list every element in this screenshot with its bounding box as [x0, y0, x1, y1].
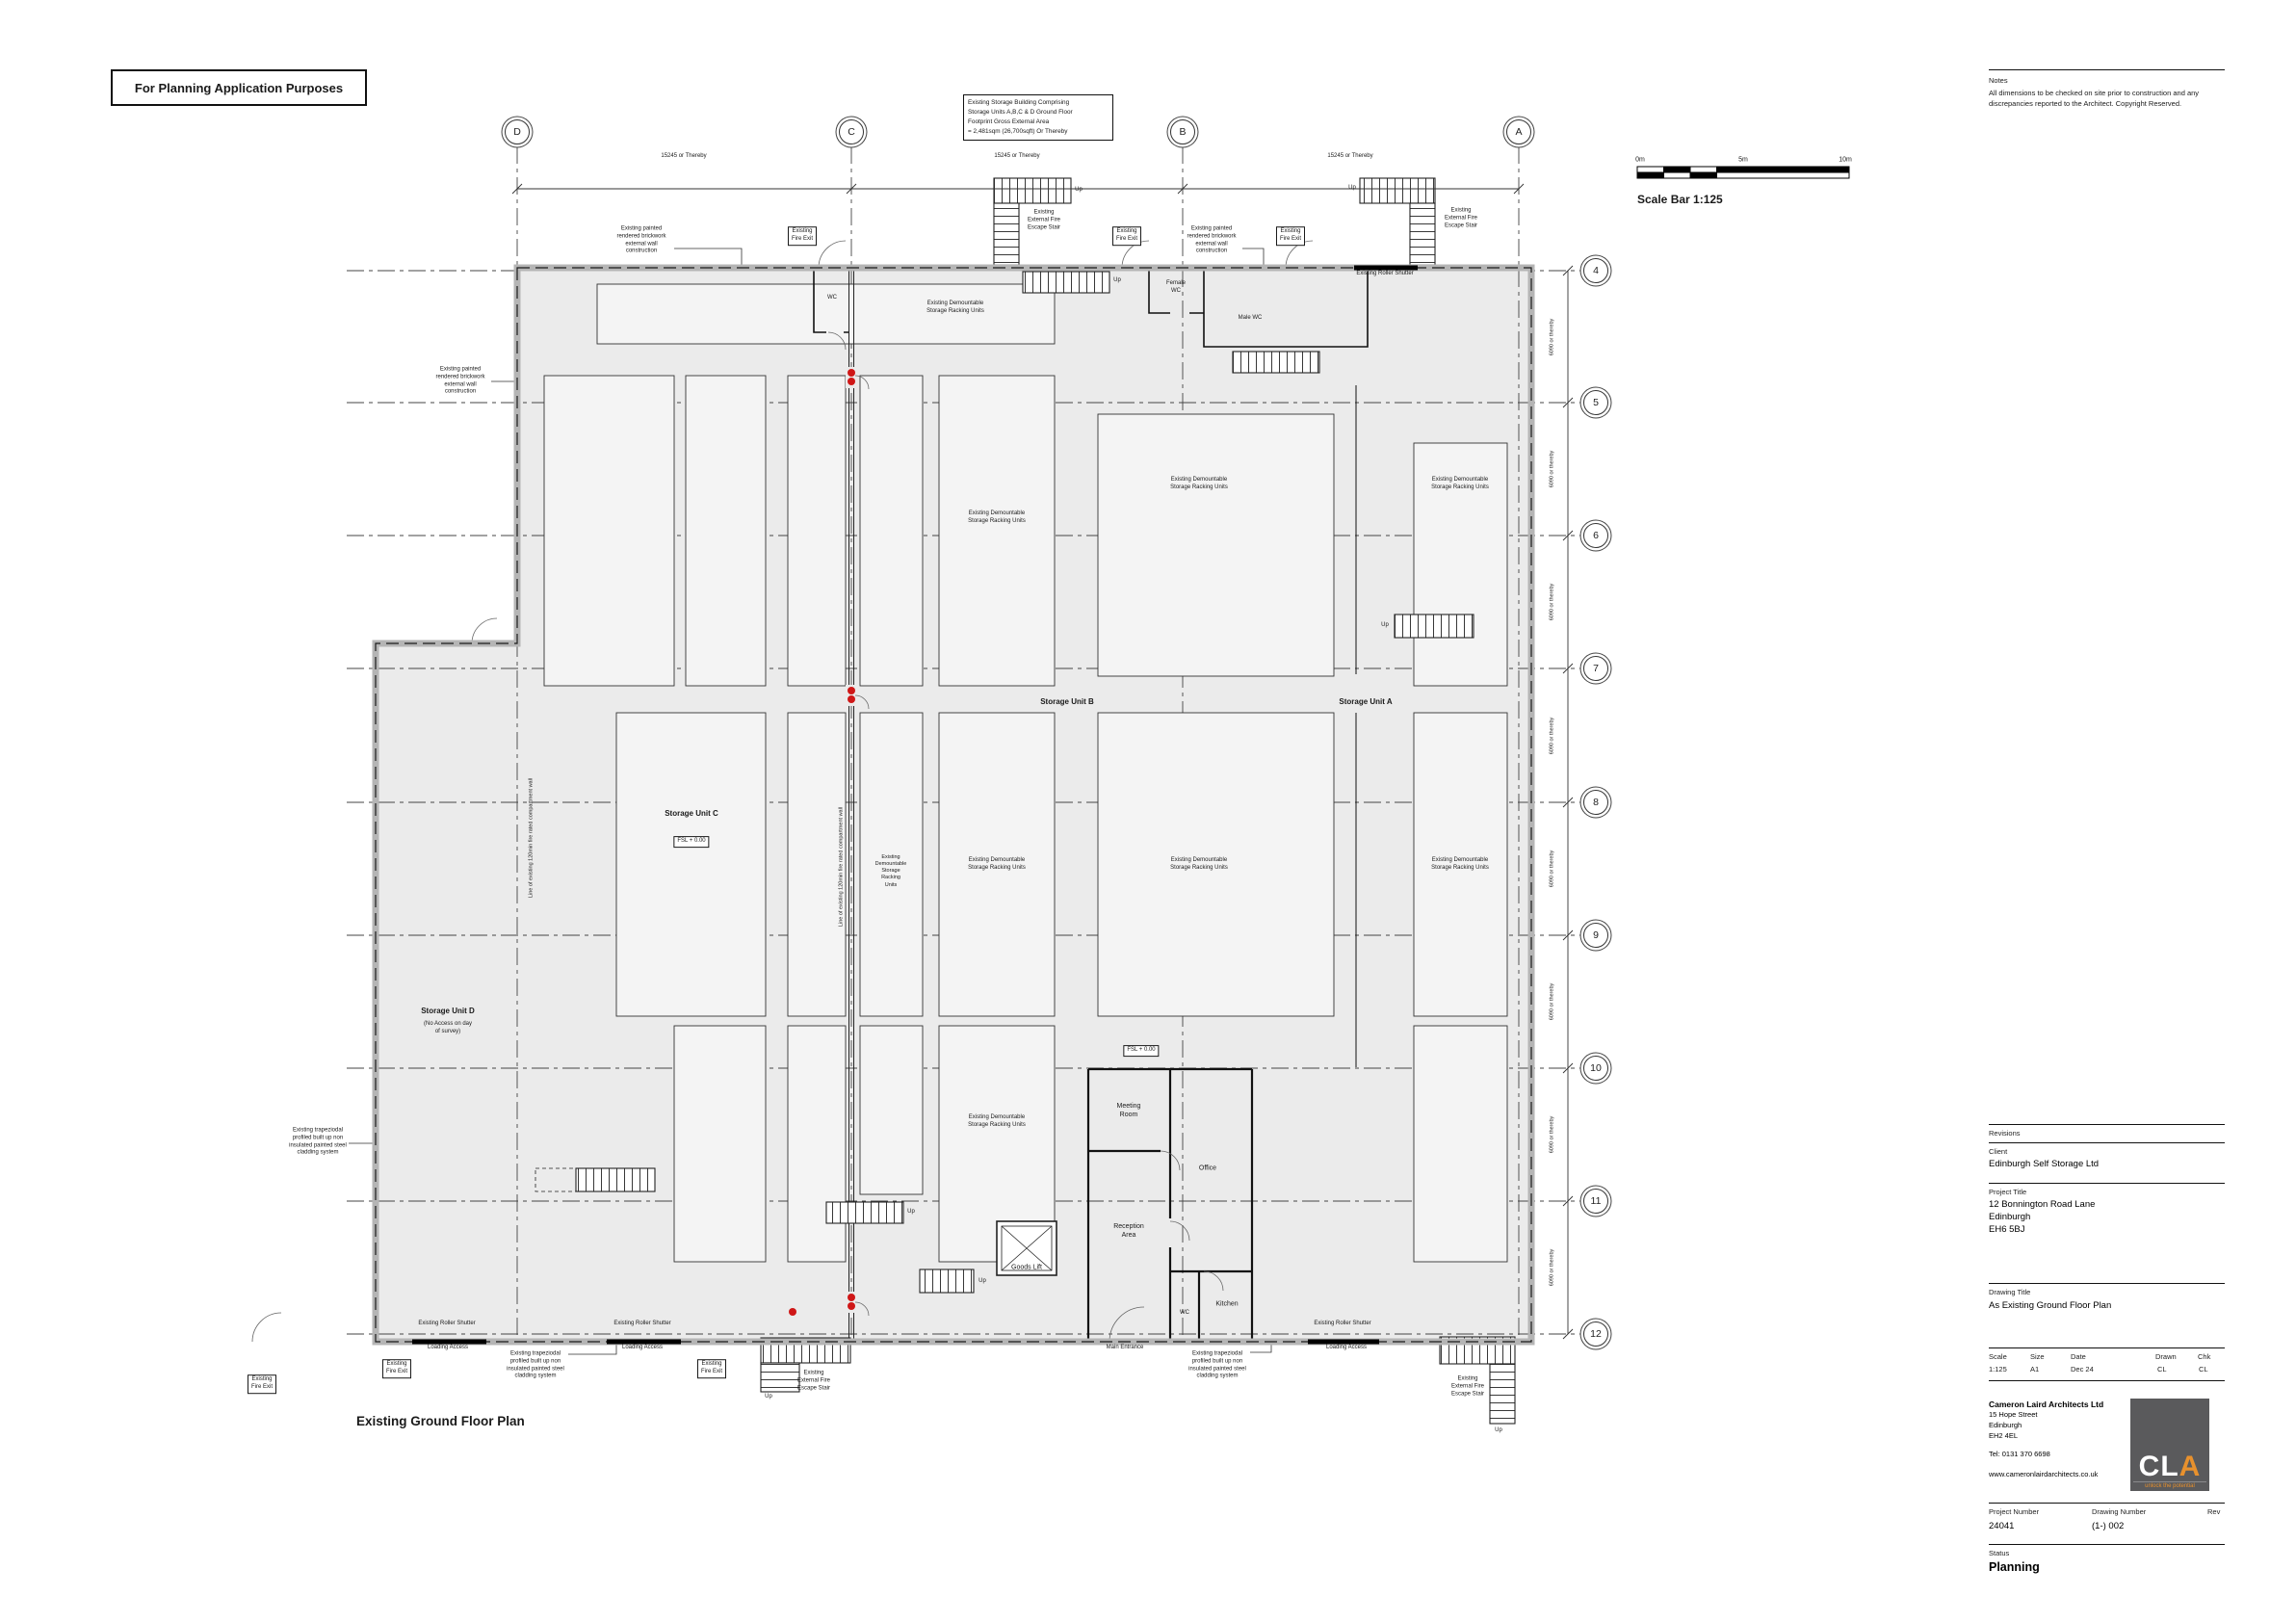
racking-label: Existing DemountableStorage Racking Unit…	[968, 510, 1026, 526]
storage-unit-b-label: Storage Unit B	[1040, 697, 1094, 707]
roller-shutter-label: Existing Roller Shutter	[1314, 1321, 1370, 1328]
racking-label: Existing DemountableStorage Racking Unit…	[1431, 857, 1489, 873]
logo-tagline: unlock the potential	[2133, 1481, 2205, 1489]
rev-label: Rev	[2207, 1507, 2220, 1516]
racking-label: Existing DemountableStorage Racking Unit…	[1431, 477, 1489, 492]
escape-stair-label: ExistingExternal FireEscape Stair	[1451, 1375, 1484, 1398]
dim-7-8: 6090 or thereby	[1549, 718, 1555, 755]
scale-bar-5m: 5m	[1738, 155, 1748, 164]
up-label: Up	[1495, 1427, 1502, 1435]
up-label: Up	[907, 1209, 915, 1216]
storage-unit-d-note: (No Access on dayof survey)	[424, 1021, 472, 1036]
drawing-number-label: Drawing Number	[2092, 1507, 2146, 1516]
racking-label: Existing DemountableStorage Racking Unit…	[1170, 857, 1228, 873]
racking-label: Existing DemountableStorage Racking Unit…	[926, 301, 984, 316]
project-address-line: Edinburgh	[1989, 1212, 2030, 1222]
up-label: Up	[1113, 277, 1121, 285]
brickwork-note: Existing paintedrendered brickwork exter…	[435, 366, 484, 396]
size-label: Size	[2030, 1352, 2045, 1361]
fire-exit-label: ExistingFire Exit	[1112, 226, 1141, 246]
titleblock-divider	[1989, 1503, 2225, 1504]
grid-bubble-6: 6	[1583, 523, 1608, 548]
office-label: Office	[1199, 1164, 1216, 1172]
grid-bubble-7: 7	[1583, 656, 1608, 681]
scale-bar-caption: Scale Bar 1:125	[1637, 193, 1723, 206]
scale-label: Scale	[1989, 1352, 2007, 1361]
drawing-number: (1-) 002	[2092, 1521, 2124, 1531]
grid-bubble-B: B	[1170, 119, 1195, 144]
titleblock-divider	[1989, 1347, 2225, 1348]
compartment-wall-note: Line of existing 120min fire rated compa…	[838, 807, 845, 927]
titleblock-divider	[1989, 1283, 2225, 1284]
up-label: Up	[1348, 185, 1356, 193]
dim-c-b: 15245 or Thereby	[994, 153, 1039, 161]
scale-bar-10m: 10m	[1839, 155, 1852, 164]
escape-stair-label: ExistingExternal FireEscape Stair	[1445, 207, 1477, 229]
escape-stair-label: ExistingExternal FireEscape Stair	[797, 1370, 830, 1392]
roller-shutter-label: Existing Roller Shutter	[1356, 271, 1413, 278]
dim-5-6: 6090 or thereby	[1549, 451, 1555, 488]
architect-address-line: Edinburgh	[1989, 1421, 2022, 1431]
titleblock-divider	[1989, 1124, 2225, 1125]
scale-value: 1:125	[1989, 1365, 2007, 1373]
logo-a: A	[2179, 1451, 2202, 1482]
loading-access-label: Loading Access	[1326, 1345, 1367, 1352]
client-name: Edinburgh Self Storage Ltd	[1989, 1159, 2099, 1169]
dim-d-c: 15245 or Thereby	[661, 153, 706, 161]
cladding-note: Existing trapeziodalprofiled built up no…	[1188, 1350, 1246, 1380]
logo-cl: CL	[2139, 1451, 2179, 1482]
titleblock-divider	[1989, 1183, 2225, 1184]
project-number-label: Project Number	[1989, 1507, 2039, 1516]
reception-label: ReceptionArea	[1113, 1222, 1144, 1240]
notes-body: All dimensions to be checked on site pri…	[1989, 89, 2231, 110]
fire-exit-label: ExistingFire Exit	[788, 226, 817, 246]
loading-access-label: Loading Access	[622, 1345, 663, 1352]
planning-stamp: For Planning Application Purposes	[111, 69, 367, 106]
drawn-label: Drawn	[2155, 1352, 2177, 1361]
fire-exit-label: ExistingFire Exit	[697, 1359, 726, 1378]
up-label: Up	[765, 1394, 772, 1401]
ffl-label: FSL + 0.00	[1123, 1045, 1159, 1057]
titleblock-divider	[1989, 1142, 2225, 1143]
architect-tel: Tel: 0131 370 6698	[1989, 1450, 2050, 1460]
notes-title: Notes	[1989, 76, 2008, 85]
grid-bubble-10: 10	[1583, 1056, 1608, 1081]
scale-bar	[1637, 167, 1849, 178]
notes-divider	[1989, 69, 2225, 70]
dim-8-9: 6090 or thereby	[1549, 850, 1555, 888]
dim-6-7: 6090 or thereby	[1549, 584, 1555, 621]
grid-bubble-4: 4	[1583, 258, 1608, 283]
grid-bubble-5: 5	[1583, 390, 1608, 415]
revisions-label: Revisions	[1989, 1129, 2021, 1138]
escape-stair-label: ExistingExternal FireEscape Stair	[1028, 209, 1060, 231]
floor-plan-linework	[0, 0, 2296, 1622]
architect-name: Cameron Laird Architects Ltd	[1989, 1399, 2103, 1410]
brickwork-note: Existing paintedrendered brickwork exter…	[616, 225, 665, 255]
status-value: Planning	[1989, 1560, 2040, 1574]
area-note-line: = 2,481sqm (26,700sqft) Or Thereby	[968, 127, 1109, 137]
grid-bubble-9: 9	[1583, 923, 1608, 948]
grid-bubble-D: D	[505, 119, 530, 144]
racking-label: Existing DemountableStorage Racking Unit…	[968, 1114, 1026, 1130]
client-label: Client	[1989, 1147, 2007, 1156]
area-note-line: Footprint Gross External Area	[968, 118, 1109, 127]
storage-unit-d-label: Storage Unit D	[421, 1007, 475, 1016]
grid-bubble-11: 11	[1583, 1189, 1608, 1214]
goods-lift-label: Goods Lift	[1011, 1263, 1042, 1271]
kitchen-label: Kitchen	[1215, 1299, 1238, 1308]
fire-exit-label: ExistingFire Exit	[1276, 226, 1305, 246]
grid-bubble-A: A	[1506, 119, 1531, 144]
drawing-sheet: For Planning Application Purposes Existi…	[0, 0, 2296, 1622]
date-value: Dec 24	[2071, 1365, 2094, 1373]
storage-unit-a-label: Storage Unit A	[1339, 697, 1392, 707]
date-label: Date	[2071, 1352, 2086, 1361]
architect-web: www.cameronlairdarchitects.co.uk	[1989, 1470, 2098, 1480]
area-note-line: Existing Storage Building Comprising	[968, 98, 1109, 108]
grid-bubble-8: 8	[1583, 790, 1608, 815]
titleblock-divider	[1989, 1380, 2225, 1381]
racking-label: Existing DemountableStorage Racking Unit…	[1170, 477, 1228, 492]
fire-exit-label: ExistingFire Exit	[382, 1359, 411, 1378]
male-wc-label: Male WC	[1239, 315, 1263, 323]
dim-11-12: 6090 or thereby	[1549, 1249, 1555, 1287]
project-number: 24041	[1989, 1521, 2014, 1531]
drawing-title: As Existing Ground Floor Plan	[1989, 1300, 2111, 1311]
architect-address-line: 15 Hope Street	[1989, 1410, 2037, 1421]
storage-unit-c-label: Storage Unit C	[665, 809, 718, 819]
area-note-line: Storage Units A,B,C & D Ground Floor	[968, 108, 1109, 118]
dim-10-11: 6090 or thereby	[1549, 1116, 1555, 1154]
chk-label: Chk	[2198, 1352, 2210, 1361]
main-entrance-label: Main Entrance	[1107, 1345, 1144, 1352]
architect-address-line: EH2 4EL	[1989, 1431, 2018, 1442]
dim-9-10: 6090 or thereby	[1549, 983, 1555, 1021]
scale-bar-0m: 0m	[1635, 155, 1645, 164]
ffl-label: FSL + 0.00	[673, 836, 709, 848]
roller-shutter-label: Existing Roller Shutter	[613, 1321, 670, 1328]
drawing-title-label: Drawing Title	[1989, 1288, 2030, 1296]
compartment-wall-note: Line of existing 120min fire rated compa…	[528, 778, 535, 898]
meeting-room-label: MeetingRoom	[1117, 1102, 1141, 1119]
female-wc-label: FemaleWC	[1166, 280, 1186, 296]
cladding-note: Existing trapeziodalprofiled built up no…	[507, 1350, 564, 1380]
wc-label: WC	[827, 295, 837, 302]
racking-label-stacked: ExistingDemountable StorageRacking Units	[875, 854, 907, 889]
status-label: Status	[1989, 1549, 2009, 1557]
wc-label: WC	[1180, 1310, 1189, 1318]
racking-label: Existing DemountableStorage Racking Unit…	[968, 857, 1026, 873]
plan-title: Existing Ground Floor Plan	[356, 1414, 525, 1428]
up-label: Up	[1381, 622, 1389, 630]
brickwork-note: Existing paintedrendered brickwork exter…	[1187, 225, 1236, 255]
dim-b-a: 15245 or Thereby	[1327, 153, 1372, 161]
loading-access-label: Loading Access	[428, 1345, 468, 1352]
chk-value: CL	[2199, 1365, 2208, 1373]
up-label: Up	[978, 1278, 986, 1286]
fire-exit-label: ExistingFire Exit	[248, 1374, 276, 1394]
grid-bubble-12: 12	[1583, 1321, 1608, 1347]
roller-shutter-label: Existing Roller Shutter	[418, 1321, 475, 1328]
area-note-box: Existing Storage Building Comprising Sto…	[963, 94, 1113, 141]
cladding-note: Existing trapeziodalprofiled built up no…	[289, 1127, 347, 1157]
cla-logo: CLA unlock the potential	[2130, 1399, 2209, 1491]
project-title-label: Project Title	[1989, 1188, 2026, 1196]
drawn-value: CL	[2157, 1365, 2167, 1373]
size-value: A1	[2030, 1365, 2039, 1373]
dim-4-5: 6090 or thereby	[1549, 319, 1555, 356]
project-address-line: EH6 5BJ	[1989, 1224, 2025, 1235]
up-label: Up	[1075, 187, 1083, 195]
titleblock-divider	[1989, 1544, 2225, 1545]
project-address-line: 12 Bonnington Road Lane	[1989, 1199, 2095, 1210]
grid-bubble-C: C	[839, 119, 864, 144]
